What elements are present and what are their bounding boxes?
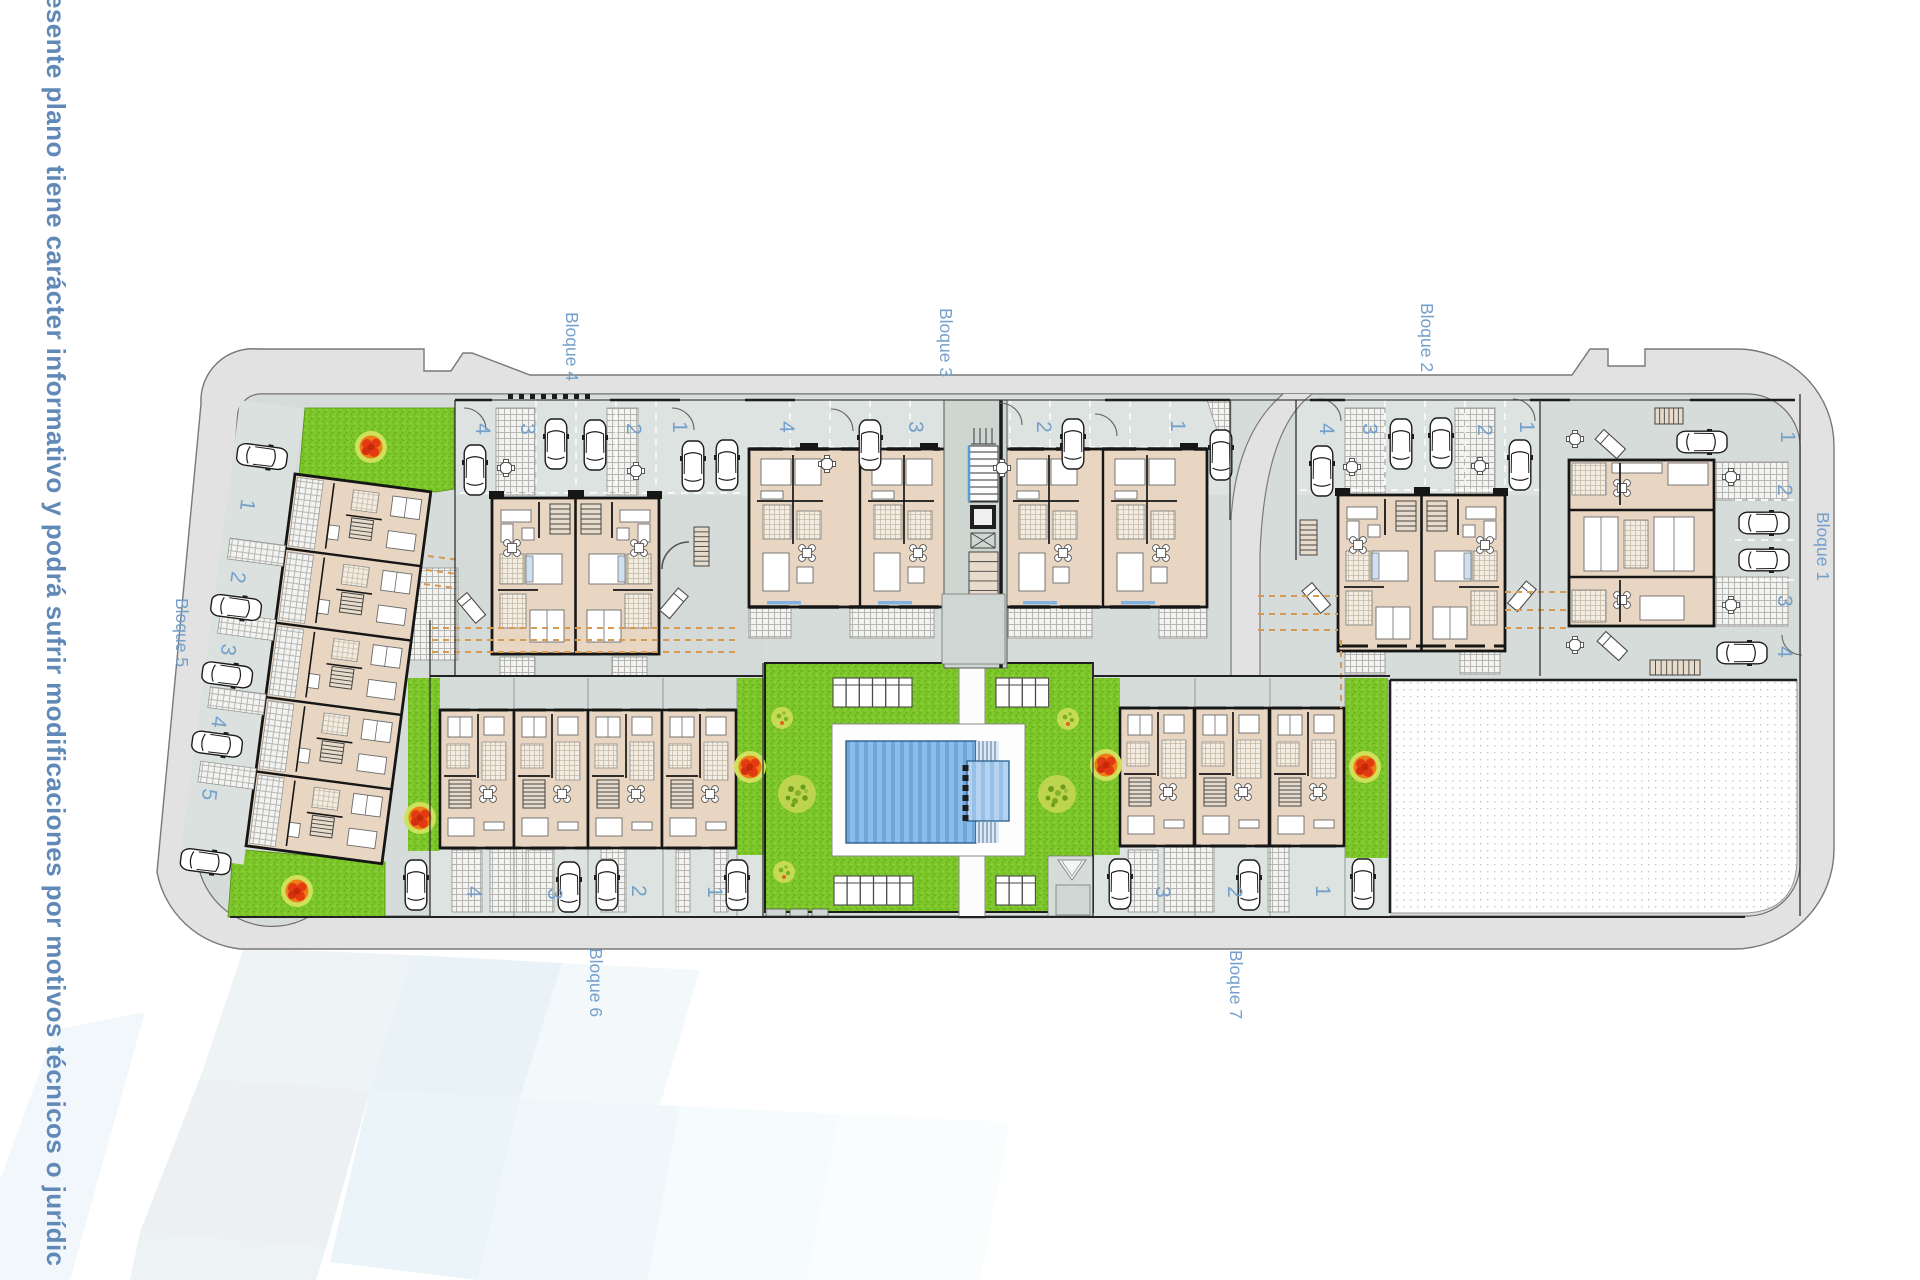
svg-text:3: 3 (1151, 886, 1174, 898)
svg-text:2: 2 (1223, 886, 1246, 898)
svg-text:1: 1 (1166, 420, 1189, 432)
svg-text:esente plano tiene carácter in: esente plano tiene carácter informativo … (41, 0, 71, 1266)
svg-text:4: 4 (471, 423, 494, 435)
svg-text:Bloque 1: Bloque 1 (1813, 512, 1833, 581)
svg-text:2: 2 (1032, 421, 1055, 433)
svg-text:Bloque 3: Bloque 3 (936, 308, 956, 377)
svg-text:1: 1 (1311, 885, 1334, 897)
svg-text:Bloque 6: Bloque 6 (586, 948, 606, 1017)
svg-text:Bloque 5: Bloque 5 (172, 598, 192, 667)
svg-text:3: 3 (904, 421, 927, 433)
svg-text:3: 3 (516, 423, 539, 435)
svg-text:4: 4 (462, 886, 485, 898)
svg-text:1: 1 (703, 886, 726, 898)
svg-text:1: 1 (668, 421, 691, 433)
svg-text:Bloque 7: Bloque 7 (1226, 950, 1246, 1019)
svg-text:2: 2 (627, 885, 650, 897)
svg-text:3: 3 (1358, 423, 1381, 435)
svg-text:2: 2 (1773, 484, 1796, 496)
svg-text:4: 4 (1773, 646, 1796, 658)
svg-text:4: 4 (775, 421, 798, 433)
svg-text:Bloque 2: Bloque 2 (1417, 303, 1437, 372)
svg-text:3: 3 (1773, 595, 1796, 607)
svg-text:1: 1 (1515, 421, 1538, 433)
svg-text:1: 1 (1776, 431, 1799, 443)
svg-text:2: 2 (1473, 424, 1496, 436)
svg-text:2: 2 (622, 423, 645, 435)
svg-text:Bloque 4: Bloque 4 (562, 312, 582, 381)
svg-text:3: 3 (543, 888, 566, 900)
svg-text:4: 4 (1315, 423, 1338, 435)
